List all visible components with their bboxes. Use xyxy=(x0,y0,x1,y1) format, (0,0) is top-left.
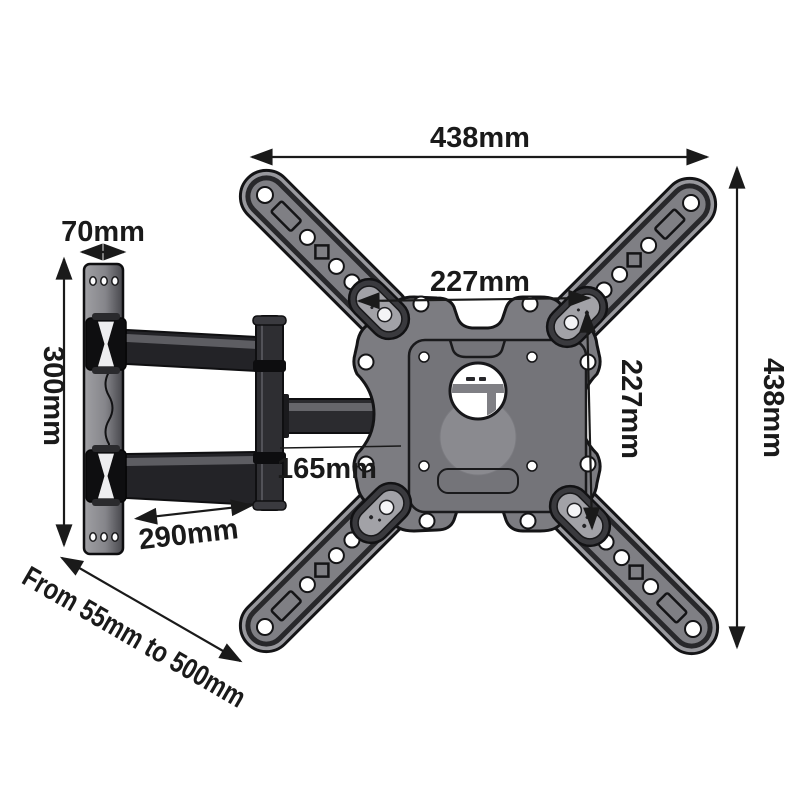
dim-vesa-height-label: 227mm xyxy=(615,359,647,459)
diagram-canvas: 438mm 438mm 227mm 227mm 70mm 300mm 165mm xyxy=(0,0,800,800)
dim-wall-plate-height: 300mm xyxy=(37,259,69,545)
wall-mount-dimension-diagram: 438mm 438mm 227mm 227mm 70mm 300mm 165mm xyxy=(0,0,800,800)
hinge-upper xyxy=(86,313,126,374)
wall-plate xyxy=(84,264,123,554)
hinge-lower xyxy=(86,445,126,506)
dim-arm-reach: 290mm xyxy=(136,505,256,556)
dim-wall-plate-width: 70mm xyxy=(61,216,145,252)
linkage-arms xyxy=(126,316,286,510)
dim-side-height-label: 438mm xyxy=(757,358,789,458)
dim-wall-plate-width-label: 70mm xyxy=(61,216,145,248)
dim-wall-plate-height-label: 300mm xyxy=(37,346,69,446)
dim-top-width-label: 438mm xyxy=(430,122,530,154)
dim-extension-range-label: From 55mm to 500mm xyxy=(17,561,251,715)
dim-side-height: 438mm xyxy=(737,168,789,647)
dim-vesa-width-label: 227mm xyxy=(430,266,530,298)
dim-top-width: 438mm xyxy=(252,122,707,157)
cable-hole xyxy=(450,363,506,420)
dim-arm-segment-label: 165mm xyxy=(277,453,377,485)
dim-extension-range: From 55mm to 500mm xyxy=(17,546,260,714)
dim-arm-reach-label: 290mm xyxy=(137,513,240,556)
